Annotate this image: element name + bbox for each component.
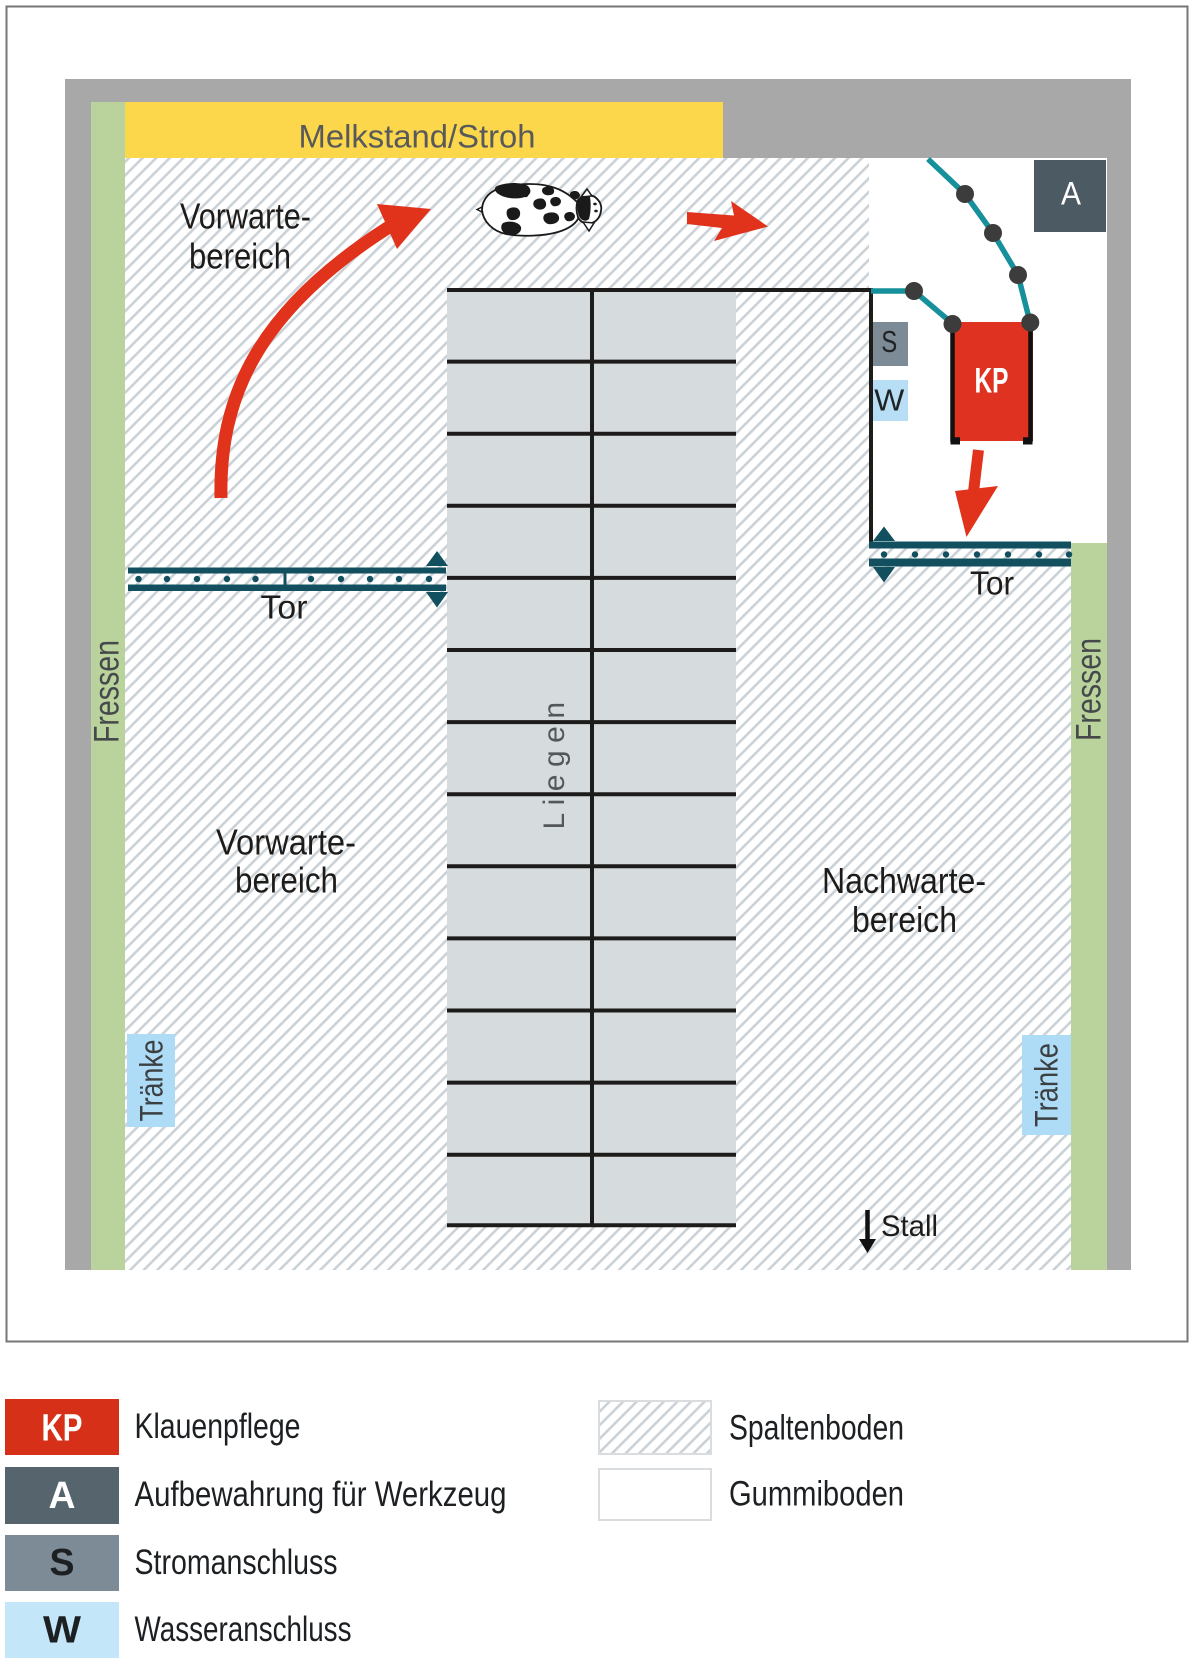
svg-text:Nachwarte-: Nachwarte-: [822, 860, 986, 901]
svg-text:Tor: Tor: [261, 589, 308, 626]
svg-text:Aufbewahrung für Werkzeug: Aufbewahrung für Werkzeug: [135, 1475, 507, 1514]
svg-text:Vorwarte-: Vorwarte-: [216, 822, 356, 863]
svg-text:Fressen: Fressen: [88, 640, 127, 743]
svg-text:A: A: [49, 1475, 76, 1517]
svg-text:Melkstand/Stroh: Melkstand/Stroh: [299, 119, 536, 155]
svg-text:bereich: bereich: [189, 236, 291, 277]
svg-text:Liegen: Liegen: [538, 694, 571, 829]
svg-text:KP: KP: [42, 1408, 83, 1450]
svg-text:W: W: [43, 1610, 81, 1652]
svg-text:Vorwarte-: Vorwarte-: [180, 196, 311, 237]
svg-text:Fressen: Fressen: [1070, 638, 1109, 741]
svg-text:Spaltenboden: Spaltenboden: [729, 1409, 904, 1448]
svg-text:bereich: bereich: [235, 860, 338, 901]
svg-text:S: S: [50, 1542, 75, 1584]
svg-text:Tränke: Tränke: [1029, 1043, 1065, 1127]
svg-text:W: W: [874, 383, 905, 418]
svg-text:Tor: Tor: [970, 565, 1014, 602]
svg-text:Tränke: Tränke: [134, 1040, 170, 1122]
svg-text:KP: KP: [975, 362, 1009, 401]
svg-text:Klauenpflege: Klauenpflege: [135, 1407, 301, 1446]
svg-text:Gummiboden: Gummiboden: [729, 1475, 904, 1514]
svg-text:bereich: bereich: [852, 899, 957, 940]
svg-text:Stromanschluss: Stromanschluss: [135, 1543, 338, 1582]
svg-text:S: S: [881, 324, 897, 359]
svg-text:A: A: [1061, 176, 1082, 212]
svg-text:Stall: Stall: [881, 1210, 938, 1243]
svg-text:Wasseranschluss: Wasseranschluss: [135, 1610, 352, 1649]
